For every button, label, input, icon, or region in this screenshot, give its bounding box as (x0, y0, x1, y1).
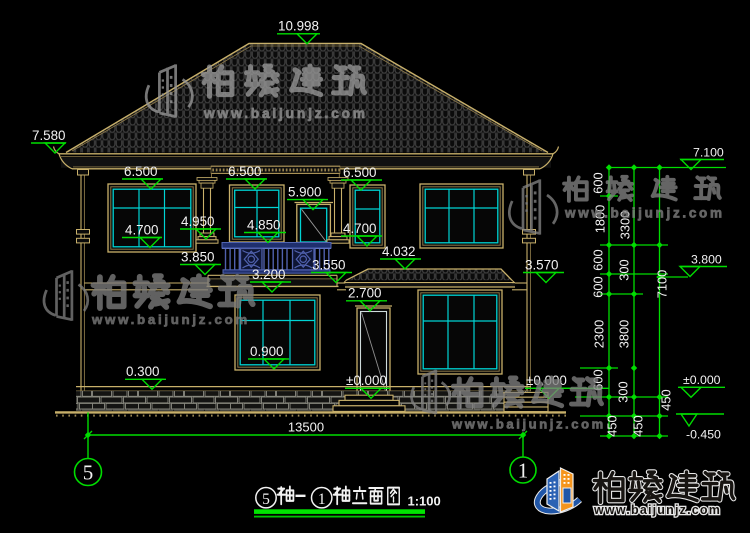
svg-text:www.baijunjz.com: www.baijunjz.com (451, 417, 606, 432)
svg-text:3.850: 3.850 (181, 249, 215, 264)
svg-text:3.800: 3.800 (691, 252, 722, 266)
svg-text:www.baijunjz.com: www.baijunjz.com (564, 206, 725, 221)
svg-text:www.baijunjz.com: www.baijunjz.com (593, 503, 721, 517)
svg-text:300: 300 (617, 259, 632, 280)
svg-text:3800: 3800 (617, 320, 632, 348)
svg-text:4.032: 4.032 (382, 244, 416, 259)
svg-text:300: 300 (616, 381, 631, 402)
svg-text:600: 600 (591, 249, 606, 270)
svg-text:1:100: 1:100 (408, 494, 441, 509)
svg-text:13500: 13500 (288, 420, 324, 435)
svg-text:1: 1 (318, 491, 326, 508)
svg-text:4.950: 4.950 (181, 214, 215, 229)
svg-text:2.700: 2.700 (348, 286, 382, 301)
svg-text:6.500: 6.500 (124, 164, 158, 179)
svg-text:10.998: 10.998 (278, 19, 319, 34)
svg-text:7100: 7100 (655, 270, 670, 298)
svg-text:±0.000: ±0.000 (346, 373, 387, 388)
svg-text:1: 1 (518, 459, 529, 483)
svg-text:5.900: 5.900 (288, 184, 322, 199)
svg-text:-0.450: -0.450 (686, 428, 721, 442)
svg-text:3.570: 3.570 (525, 257, 559, 272)
svg-text:450: 450 (605, 415, 620, 436)
svg-text:www.baijunjz.com: www.baijunjz.com (91, 312, 250, 327)
svg-text:6.500: 6.500 (228, 164, 262, 179)
svg-text:4.700: 4.700 (343, 221, 377, 236)
svg-text:4.850: 4.850 (247, 217, 281, 232)
svg-text:5: 5 (83, 461, 94, 485)
svg-text:7.100: 7.100 (693, 145, 724, 159)
svg-text:7.580: 7.580 (32, 128, 66, 143)
svg-text:5: 5 (262, 491, 270, 508)
svg-text:6.500: 6.500 (343, 165, 377, 180)
svg-text:600: 600 (591, 172, 606, 193)
svg-text:0.300: 0.300 (126, 364, 160, 379)
svg-text:3.550: 3.550 (312, 257, 346, 272)
svg-text:±0.000: ±0.000 (683, 373, 721, 387)
svg-text:450: 450 (631, 415, 646, 436)
svg-text:4.700: 4.700 (125, 222, 159, 237)
svg-text:450: 450 (659, 389, 674, 410)
svg-text:www.baijunjz.com: www.baijunjz.com (203, 106, 368, 121)
svg-text:3.200: 3.200 (252, 267, 286, 282)
svg-text:2300: 2300 (592, 320, 607, 348)
svg-text:600: 600 (591, 276, 606, 297)
svg-text:0.900: 0.900 (250, 344, 284, 359)
